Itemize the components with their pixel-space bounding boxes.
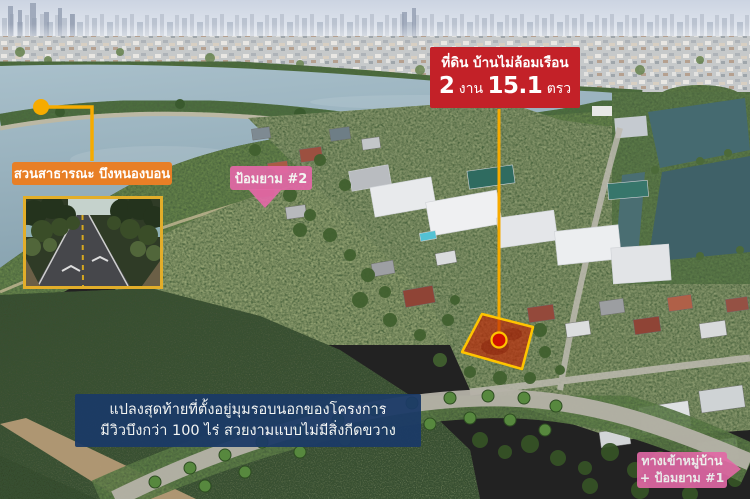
entrance-arrow-icon: [727, 458, 741, 480]
entrance-line-1: ทางเข้าหมู่บ้าน: [641, 453, 722, 470]
land-size-callout: ที่ดิน บ้านไม่ล้อมเรือน 2 งาน 15.1 ตรว: [430, 47, 580, 108]
description-box: แปลงสุดท้ายที่ตั้งอยู่มุมรอบนอกของโครงกา…: [75, 394, 421, 447]
park-marker-dot: [33, 99, 49, 115]
entrance-line-2: + ป้อมยาม #1: [640, 470, 725, 487]
description-line-1: แปลงสุดท้ายที่ตั้งอยู่มุมรอบนอกของโครงกา…: [109, 401, 386, 420]
land-size: 2 งาน 15.1 ตรว: [430, 73, 580, 101]
description-line-2: มีวิวบึงกว่า 100 ไร่ สวยงามแบบไม่มีสิ่งก…: [100, 422, 396, 441]
park-inset-photo: [23, 196, 163, 289]
guard-post-2-pointer: [248, 189, 282, 208]
land-title: ที่ดิน บ้านไม่ล้อมเรือน: [430, 55, 580, 72]
guard-post-2-label: ป้อมยาม #2: [230, 166, 312, 190]
park-road-photo: [26, 199, 160, 286]
park-label: สวนสาธารณะ บึงหนองบอน: [12, 162, 172, 185]
listing-photo: ที่ดิน บ้านไม่ล้อมเรือน 2 งาน 15.1 ตรว ส…: [0, 0, 750, 499]
village-entrance-label: ทางเข้าหมู่บ้าน + ป้อมยาม #1: [637, 452, 727, 488]
plot-marker-dot: [492, 333, 507, 348]
